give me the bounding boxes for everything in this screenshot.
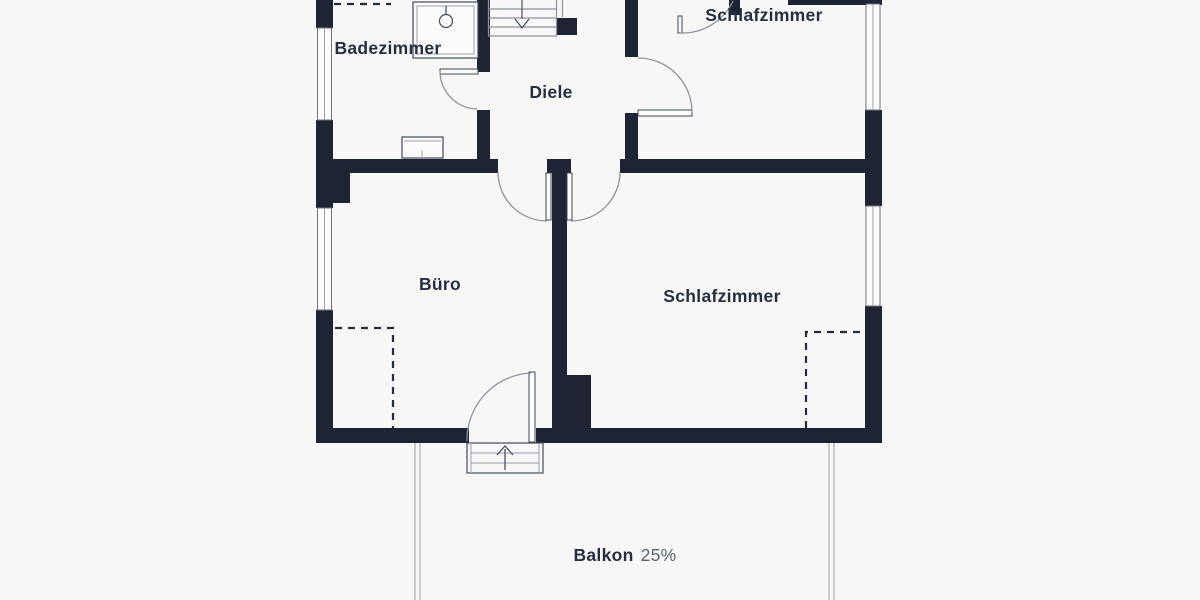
balkon-share-value: 25% xyxy=(641,545,677,565)
entrance-steps-icon xyxy=(467,443,543,473)
floor-plan: Badezimmer Diele Schlafzimmer Büro Schla… xyxy=(0,0,1200,600)
interior-walls xyxy=(316,0,867,428)
room-label-schlafzimmer-top: Schlafzimmer xyxy=(705,5,822,25)
window-schlafzimmer-top-right xyxy=(866,4,880,110)
door-badezimmer xyxy=(440,69,478,109)
room-label-buero: Büro xyxy=(419,274,461,294)
window-badezimmer-left xyxy=(318,28,332,120)
washer-icon xyxy=(402,137,443,158)
door-balcony xyxy=(467,372,535,442)
balcony-rail-left xyxy=(415,443,420,600)
staircase-icon xyxy=(488,0,563,36)
window-buero-left xyxy=(318,208,332,310)
door-buero xyxy=(498,172,551,221)
balkon-name: Balkon xyxy=(573,545,633,565)
window-schlafzimmer-bottom-right xyxy=(866,206,880,306)
room-label-diele: Diele xyxy=(529,82,572,102)
balcony-rail-right xyxy=(829,443,834,600)
exterior-walls xyxy=(316,0,882,443)
door-schlafzimmer-bottom xyxy=(567,172,620,221)
wardrobe-dashed-buero xyxy=(335,328,393,428)
wardrobe-dashed-schlafzimmer xyxy=(806,332,865,428)
room-label-badezimmer: Badezimmer xyxy=(334,38,441,58)
door-schlafzimmer-top xyxy=(638,58,692,116)
room-label-balkon: Balkon25% xyxy=(573,545,676,565)
floor-plan-canvas: Badezimmer Diele Schlafzimmer Büro Schla… xyxy=(0,0,1200,600)
room-label-schlafzimmer-bottom: Schlafzimmer xyxy=(663,286,780,306)
